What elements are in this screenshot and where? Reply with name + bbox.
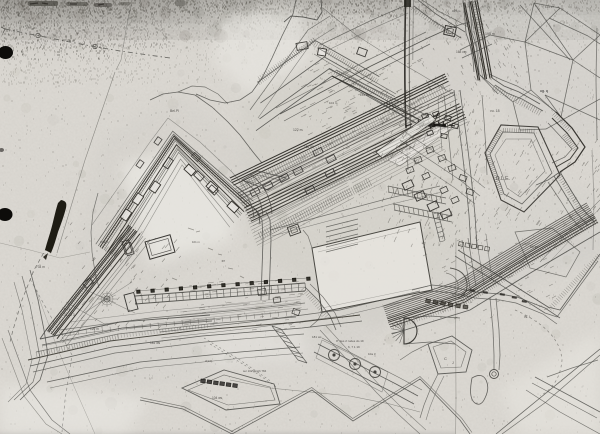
svg-text:181 ws: 181 ws (150, 341, 161, 345)
svg-text:ser 10a gerich 784: ser 10a gerich 784 (243, 369, 267, 373)
svg-text:vu. 18: vu. 18 (490, 109, 500, 113)
svg-text:10a 3: 10a 3 (368, 352, 376, 356)
svg-text:181 ws: 181 ws (312, 335, 322, 339)
svg-text:ug. q: ug. q (540, 89, 548, 93)
svg-text:60 ps: 60 ps (530, 245, 539, 249)
svg-text:7a-41: 7a-41 (62, 307, 70, 311)
svg-text:C: C (444, 356, 447, 361)
svg-text:Bel.Pl: Bel.Pl (170, 109, 179, 113)
svg-text:104 m: 104 m (329, 101, 338, 105)
svg-text:D.L.E.: D.L.E. (496, 176, 510, 182)
svg-text:101 m: 101 m (192, 240, 200, 244)
svg-text:71 19 3: 71 19 3 (64, 313, 75, 317)
svg-text:122 m.: 122 m. (293, 128, 303, 132)
svg-text:734 m: 734 m (36, 265, 45, 269)
svg-text:W. I.: W. I. (524, 315, 531, 319)
svg-text:6, 7 1 19: 6, 7 1 19 (348, 345, 360, 349)
svg-text:104 ws: 104 ws (212, 396, 223, 400)
svg-text:195 m: 195 m (485, 32, 495, 36)
svg-text:129 m: 129 m (90, 327, 99, 331)
svg-text:2(1/4): 2(1/4) (205, 359, 212, 363)
svg-text:97: 97 (222, 259, 226, 263)
svg-text:J: J (452, 361, 454, 365)
svg-text:114 17: 114 17 (545, 5, 554, 9)
svg-text:9" des 2 rudes do 19: 9" des 2 rudes do 19 (336, 339, 364, 343)
